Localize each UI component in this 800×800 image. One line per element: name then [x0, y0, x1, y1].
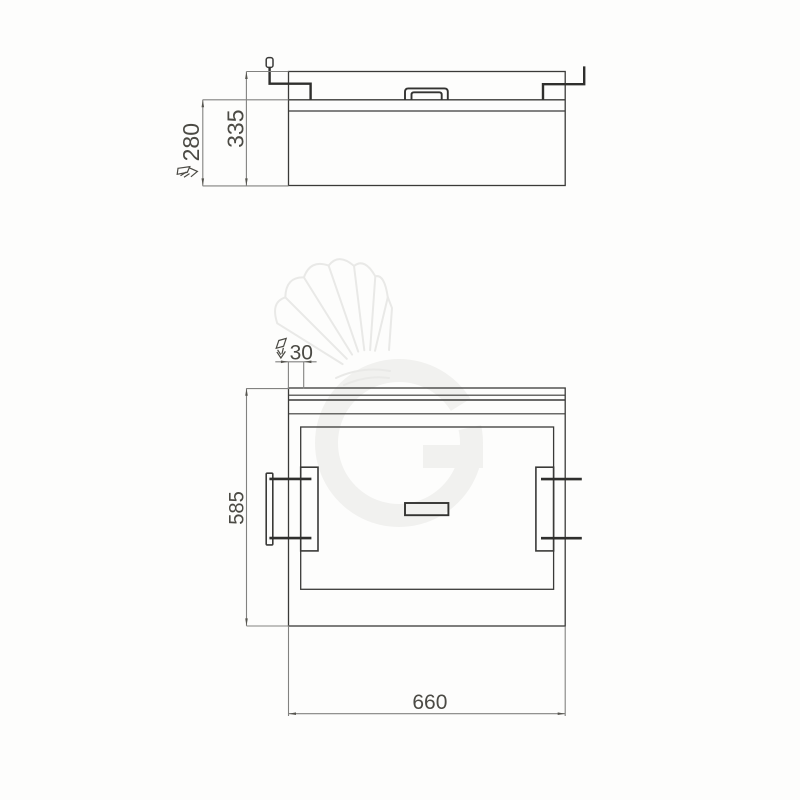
- svg-text:585: 585: [226, 491, 249, 525]
- svg-text:30: 30: [290, 342, 313, 365]
- svg-text:335: 335: [222, 110, 248, 148]
- svg-text:660: 660: [412, 691, 447, 714]
- svg-text:280: 280: [178, 123, 204, 161]
